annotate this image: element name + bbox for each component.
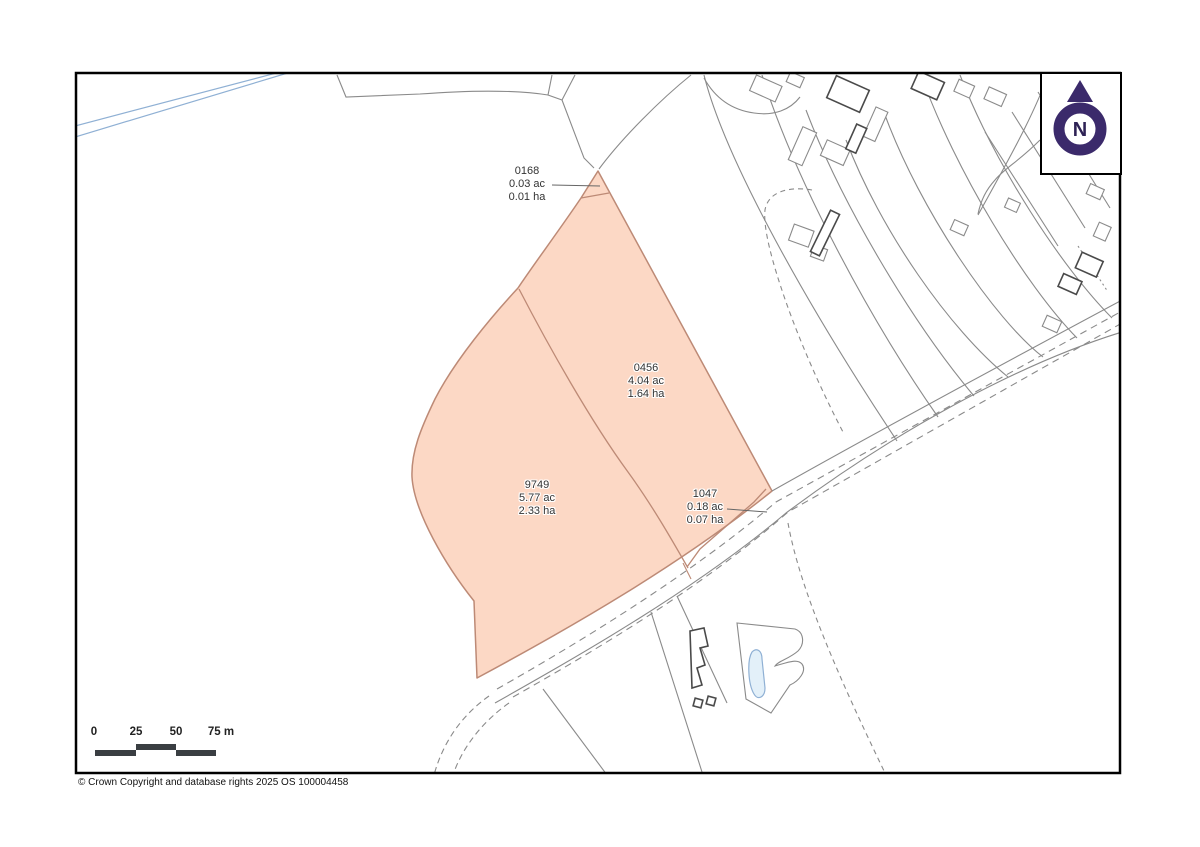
north-indicator: N (1040, 72, 1122, 175)
parcel-id: 1047 (663, 488, 747, 501)
copyright-text: © Crown Copyright and database rights 20… (78, 777, 348, 788)
scale-segment (176, 750, 216, 756)
scale-tick-50: 50 (170, 726, 183, 738)
parcel-acres: 0.18 ac (663, 501, 747, 514)
parcel-label-1047: 1047 0.18 ac 0.07 ha (663, 488, 747, 527)
parcel-hectares: 0.01 ha (485, 191, 569, 204)
parcel-label-9749: 9749 5.77 ac 2.33 ha (495, 479, 579, 518)
stream-lines (75, 72, 291, 137)
scale-tick-75: 75 m (208, 726, 234, 738)
scale-tick-25: 25 (130, 726, 143, 738)
scale-segment (95, 750, 136, 756)
parcel-acres: 0.03 ac (485, 178, 569, 191)
land-plan-page: { "parcels": [ { "id": "0168", "area_acr… (0, 0, 1200, 847)
parcel-label-0456: 0456 4.04 ac 1.64 ha (604, 362, 688, 401)
parcel-fill-group (412, 171, 772, 678)
map-canvas (0, 0, 1200, 847)
parcel-acres: 5.77 ac (495, 492, 579, 505)
parcel-id: 9749 (495, 479, 579, 492)
parcel-label-0168: 0168 0.03 ac 0.01 ha (485, 165, 569, 204)
scale-tick-0: 0 (91, 726, 97, 738)
pond-shape (749, 650, 765, 698)
north-label: N (1073, 119, 1087, 141)
parcel-acres: 4.04 ac (604, 375, 688, 388)
parcel-hectares: 0.07 ha (663, 514, 747, 527)
parcel-hectares: 1.64 ha (604, 388, 688, 401)
parcel-hectares: 2.33 ha (495, 505, 579, 518)
parcel-id: 0168 (485, 165, 569, 178)
north-arrow-icon: N (1042, 74, 1119, 172)
parcel-id: 0456 (604, 362, 688, 375)
scale-segment (136, 744, 176, 750)
